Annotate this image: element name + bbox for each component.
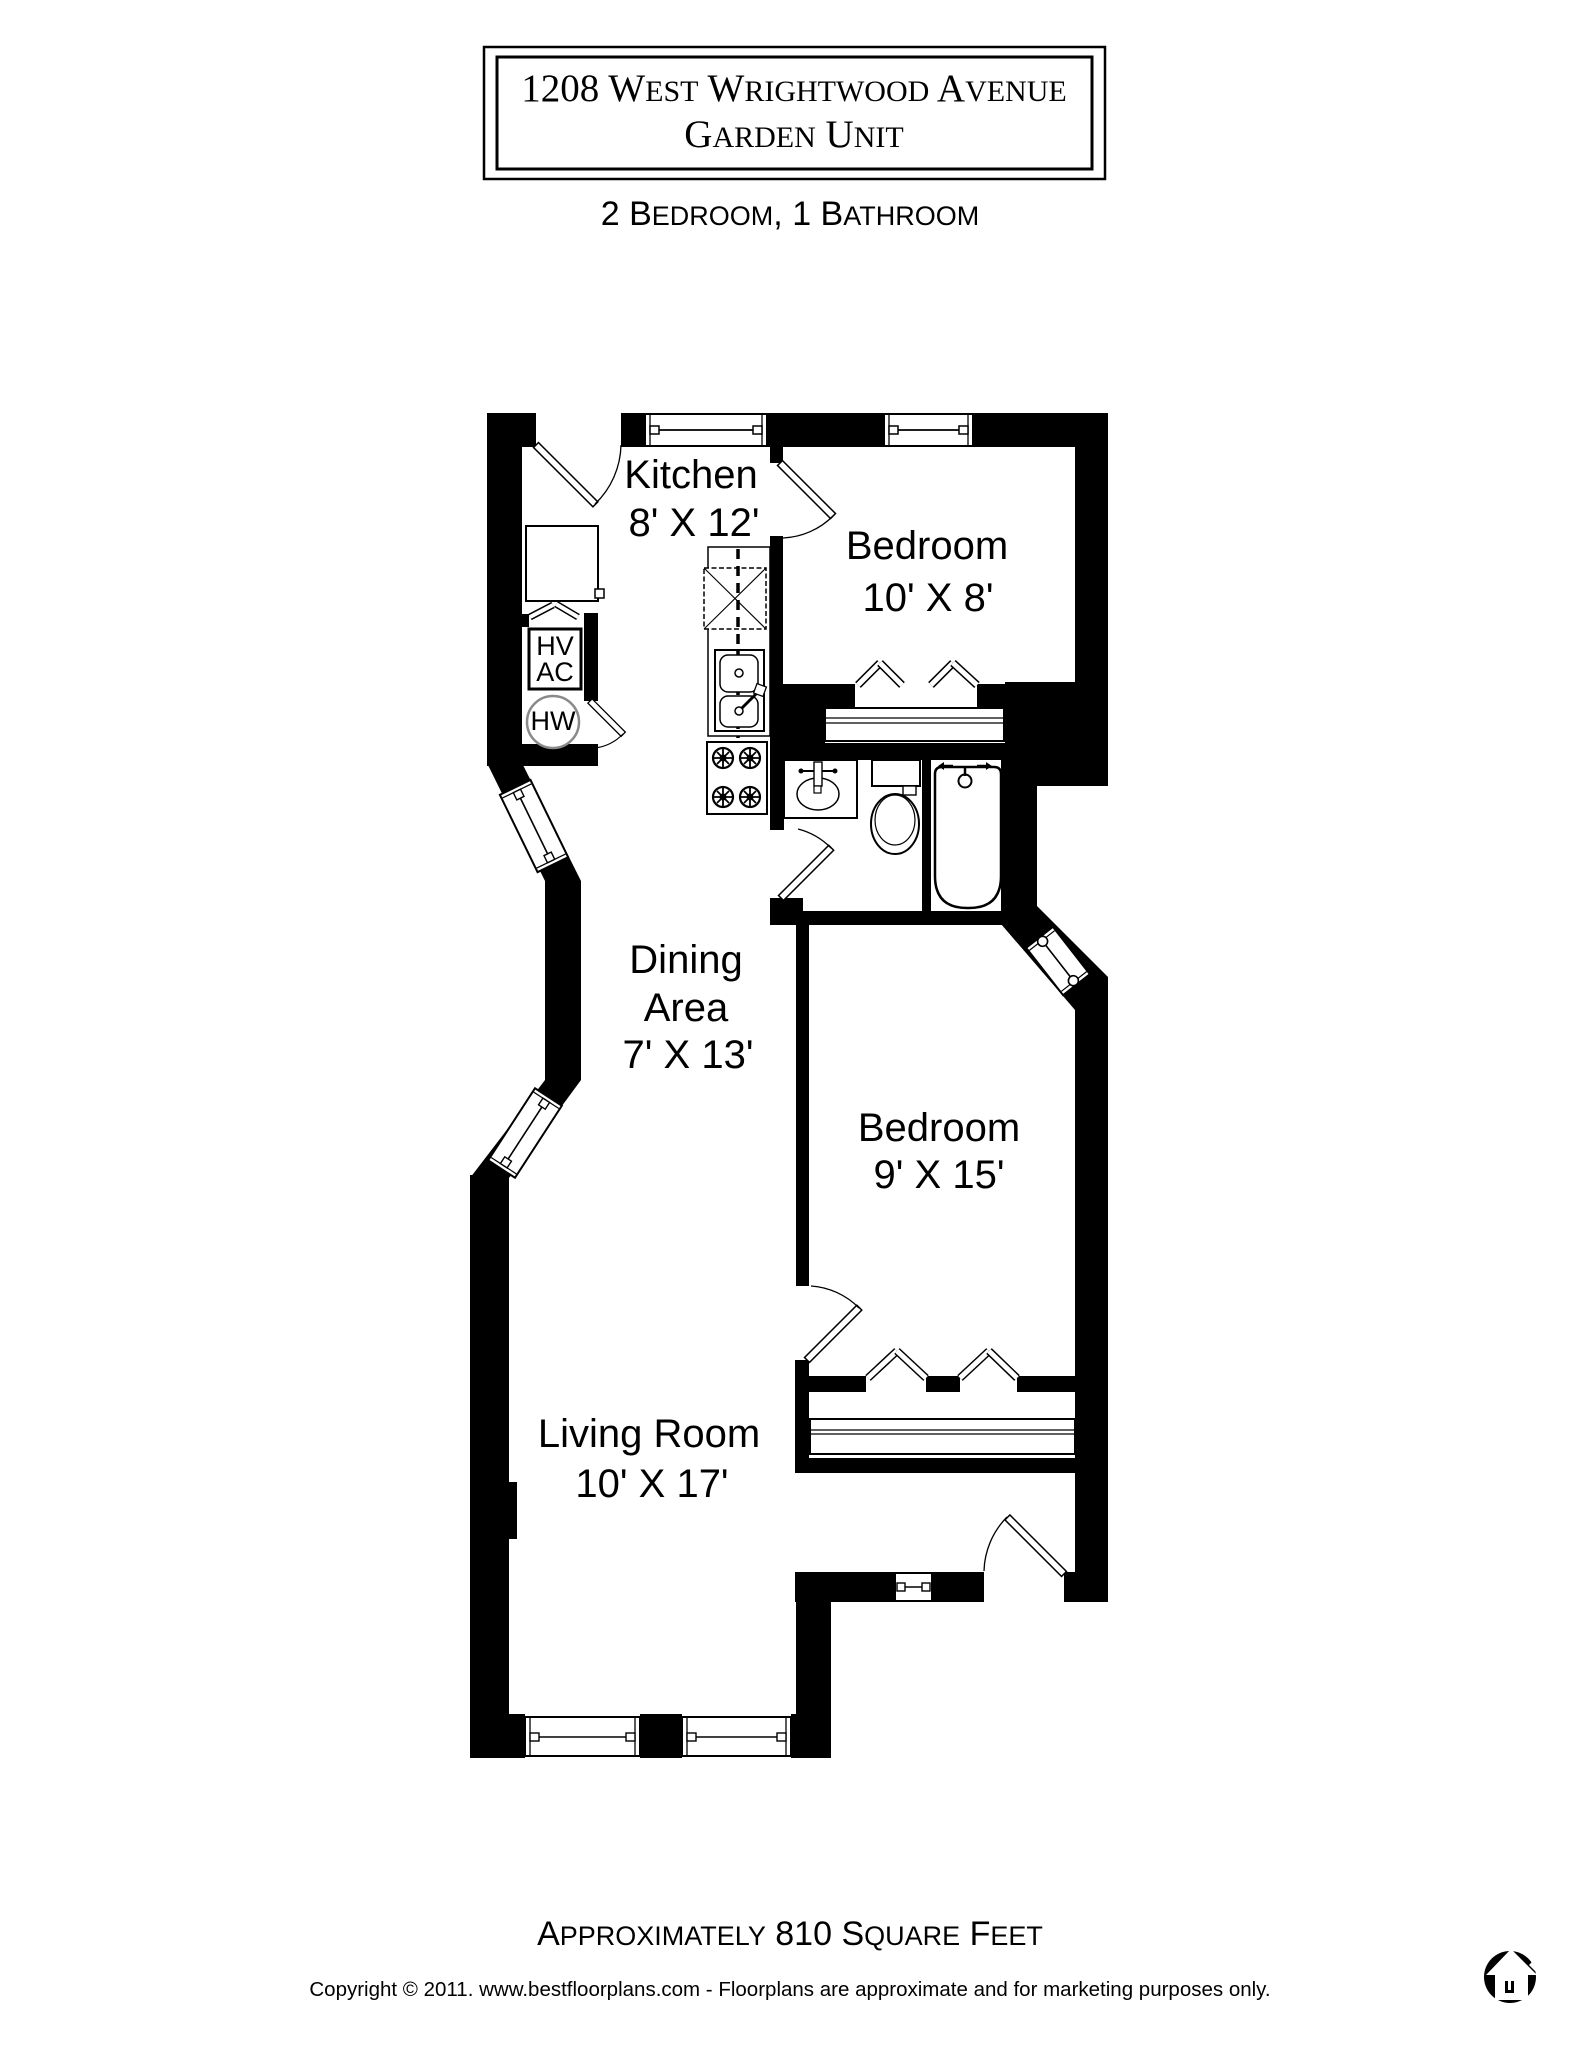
svg-text:Copyright © 2011. www.bestfloo: Copyright © 2011. www.bestfloorplans.com… (309, 1978, 1270, 2001)
svg-text:Area: Area (644, 986, 729, 1030)
svg-text:8' X 12': 8' X 12' (629, 501, 760, 545)
svg-text:2 BEDROOM, 1 BATHROOM: 2 BEDROOM, 1 BATHROOM (601, 195, 979, 233)
svg-text:Living Room: Living Room (538, 1412, 760, 1456)
svg-text:10' X 17': 10' X 17' (575, 1462, 728, 1506)
svg-text:Dining: Dining (629, 938, 742, 982)
svg-text:7' X 13': 7' X 13' (623, 1033, 754, 1077)
svg-text:10' X 8': 10' X 8' (863, 576, 994, 620)
svg-text:Bedroom: Bedroom (858, 1106, 1020, 1150)
svg-text:AC: AC (536, 657, 574, 687)
svg-text:Bedroom: Bedroom (846, 524, 1008, 568)
svg-text:HW: HW (531, 706, 576, 736)
svg-text:APPROXIMATELY 810 SQUARE FEET: APPROXIMATELY 810 SQUARE FEET (537, 1915, 1043, 1953)
svg-text:9' X 15': 9' X 15' (874, 1153, 1005, 1197)
svg-text:Kitchen: Kitchen (624, 453, 757, 497)
